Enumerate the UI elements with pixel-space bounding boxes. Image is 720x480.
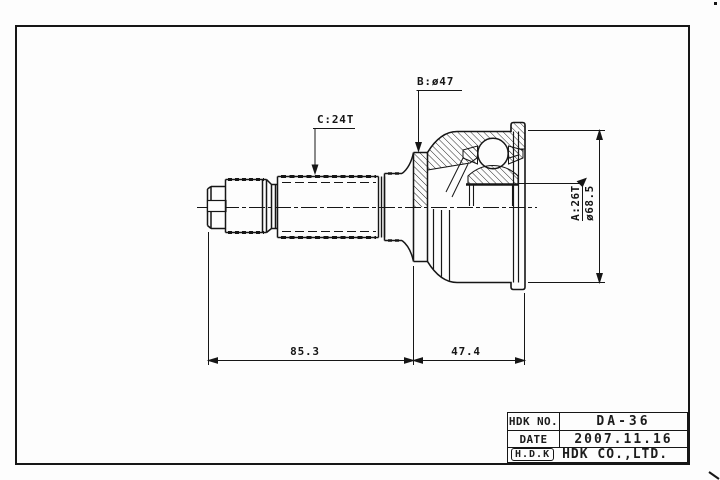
company-name: HDK CO.,LTD. <box>562 448 668 461</box>
hdk-no-value: DA-36 <box>560 414 687 429</box>
hdk-no-label: HDK NO. <box>508 413 560 430</box>
hdk-logo: H.D.K <box>511 448 554 461</box>
callout-a-group: A:26T ø68.5 <box>569 180 597 226</box>
title-block-row-company: H.D.K HDK CO.,LTD. <box>508 447 687 461</box>
callout-b-diameter: B:ø47 <box>417 76 454 88</box>
title-block-row-hdk-no: HDK NO. DA-36 <box>508 413 687 430</box>
title-block: HDK NO. DA-36 DATE 2007.11.16 H.D.K HDK … <box>507 412 688 463</box>
title-block-row-date: DATE 2007.11.16 <box>508 430 687 447</box>
callout-a-spline: A:26T <box>569 185 583 221</box>
date-label: DATE <box>508 431 560 447</box>
scan-marks <box>709 2 719 479</box>
dim-shaft-length: 85.3 <box>285 346 325 358</box>
callout-outer-diameter: ø68.5 <box>583 185 596 221</box>
drawing-sheet: B:ø47 C:24T A:26T ø68.5 85.3 47.4 HDK NO… <box>0 0 720 480</box>
dim-joint-length: 47.4 <box>446 346 486 358</box>
callout-c-spline: C:24T <box>317 114 354 126</box>
date-value: 2007.11.16 <box>560 432 687 447</box>
sheet-border <box>15 25 690 465</box>
